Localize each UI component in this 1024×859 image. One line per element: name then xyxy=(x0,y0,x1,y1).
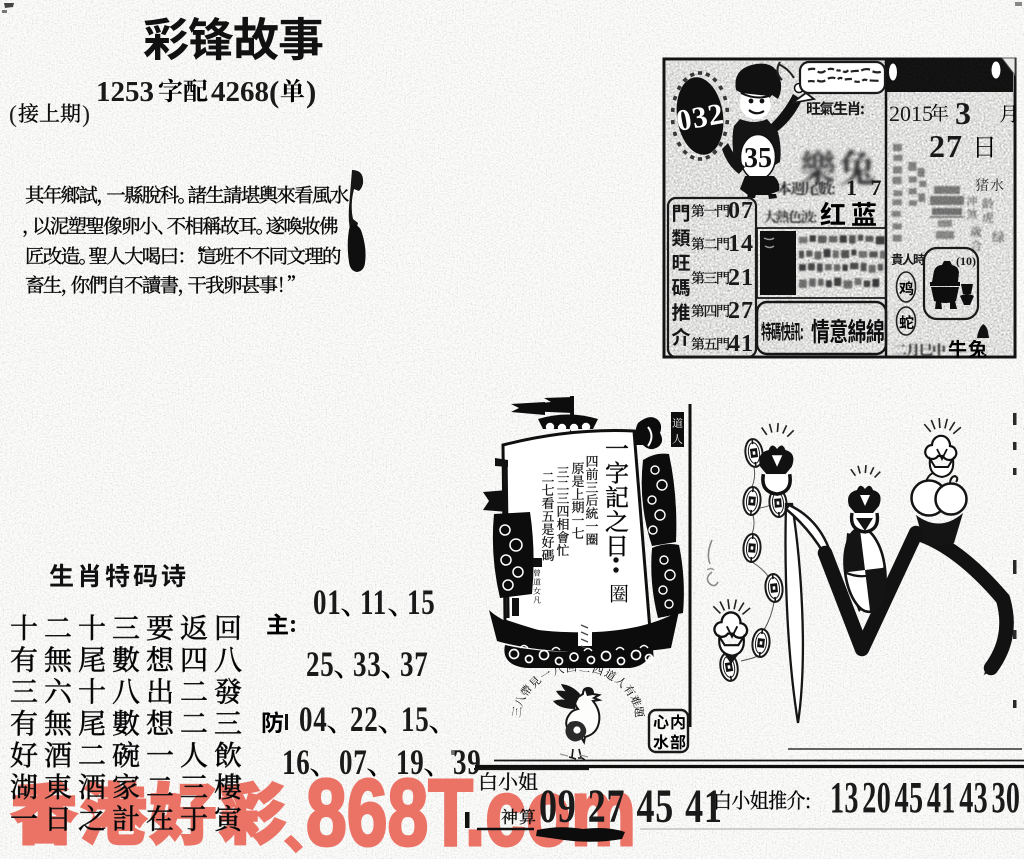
svg-text:(: ( xyxy=(9,102,17,128)
svg-text:33: 33 xyxy=(353,644,381,684)
svg-text:(10): (10) xyxy=(956,254,976,268)
svg-text:1 7: 1 7 xyxy=(846,175,886,200)
svg-text:09 27 45 41: 09 27 45 41 xyxy=(539,780,723,833)
svg-text:15: 15 xyxy=(401,699,429,739)
svg-text:27: 27 xyxy=(728,298,754,324)
svg-text:15: 15 xyxy=(407,582,435,622)
svg-text:14: 14 xyxy=(728,231,754,257)
svg-text:27: 27 xyxy=(929,128,963,164)
svg-text:37: 37 xyxy=(400,644,428,684)
svg-text:25: 25 xyxy=(306,644,334,684)
svg-text:22: 22 xyxy=(350,699,378,739)
svg-text:41: 41 xyxy=(728,331,754,357)
svg-text:1253: 1253 xyxy=(96,76,154,108)
svg-text:07: 07 xyxy=(728,198,754,224)
svg-text:04: 04 xyxy=(299,699,327,739)
svg-text:2015: 2015 xyxy=(889,101,933,126)
svg-text:11: 11 xyxy=(360,582,387,622)
svg-text:16: 16 xyxy=(282,742,310,782)
svg-text:13 20 45 41 43 30: 13 20 45 41 43 30 xyxy=(830,773,1020,822)
svg-text:(: ( xyxy=(269,74,279,109)
svg-text:): ) xyxy=(306,74,316,109)
svg-text:3: 3 xyxy=(955,95,971,131)
svg-text:21: 21 xyxy=(728,265,754,291)
svg-text:4268: 4268 xyxy=(211,76,269,108)
svg-text:19: 19 xyxy=(396,742,424,782)
svg-text:39: 39 xyxy=(453,742,481,782)
svg-text:07: 07 xyxy=(339,742,367,782)
svg-text:35: 35 xyxy=(744,143,772,174)
svg-text:): ) xyxy=(82,102,90,128)
svg-text:01: 01 xyxy=(313,582,341,622)
